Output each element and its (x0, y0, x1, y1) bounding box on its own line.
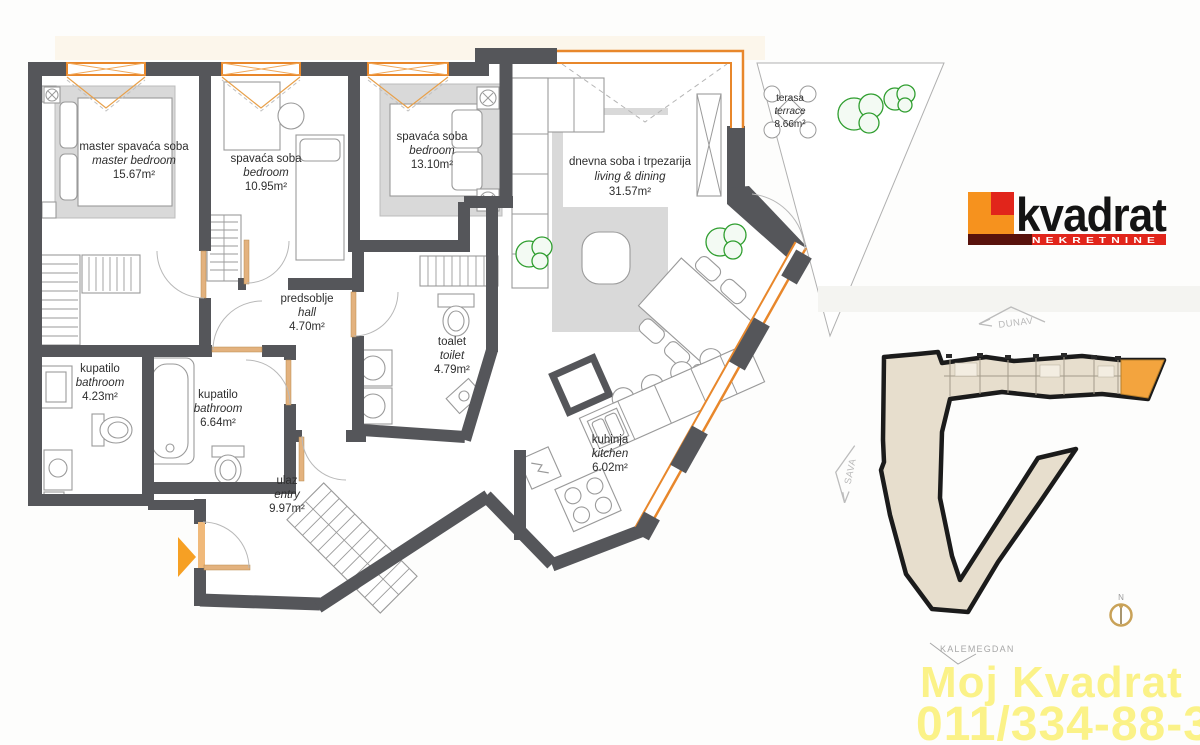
door-leaf (299, 437, 304, 481)
room-area: 10.95m² (245, 181, 287, 193)
socket-icon (477, 87, 499, 109)
room-name-en: toilet (440, 350, 465, 362)
room-area: 31.57m² (609, 186, 651, 198)
door-leaf (201, 251, 206, 298)
room-name-en: bedroom (409, 145, 455, 157)
room-name-en: bedroom (243, 167, 289, 179)
logo-kvadrat: kvadrat NEKRETNINE (968, 188, 1167, 245)
entry-door-sill (198, 522, 205, 568)
apartment-plan: master spavaća soba master bedroom 15.67… (28, 36, 944, 613)
room-name: kuhinja (592, 434, 629, 446)
room-area: 9.97m² (269, 503, 305, 515)
room-name-en: entry (274, 489, 301, 501)
living-armchair (582, 232, 630, 284)
room-area: 4.79m² (434, 364, 470, 376)
room-label-kitchen: kuhinja kitchen 6.02m² (592, 434, 629, 474)
river-label: SAVA (843, 457, 859, 485)
room-name-en: kitchen (592, 448, 628, 460)
room-name: master spavaća soba (79, 141, 189, 153)
floor-plan-canvas: master spavaća soba master bedroom 15.67… (0, 0, 1200, 745)
door-leaf (212, 347, 262, 352)
tv-unit (697, 94, 721, 196)
site-plan: DUNAV SAVA KALEMEGDAN N (818, 286, 1200, 664)
room-area: 6.02m² (592, 462, 628, 474)
room-area: 13.10m² (411, 159, 453, 171)
room-name-en: living & dining (595, 171, 667, 183)
room-label-bathroom-2: kupatilo bathroom 6.64m² (194, 389, 243, 429)
room-area: 6.64m² (200, 417, 236, 429)
landmark-label: KALEMEGDAN (940, 644, 1015, 654)
logo-bar-shade (968, 234, 1032, 245)
bedroom2-bed (296, 135, 344, 260)
bedroom2-wardrobe (207, 215, 241, 281)
room-name: spavaća soba (231, 153, 303, 165)
room-area: 8.66m² (774, 119, 806, 130)
room-label-bathroom-1: kupatilo bathroom 4.23m² (76, 363, 125, 403)
room-name: spavaća soba (397, 131, 469, 143)
compass-icon: N (1111, 593, 1132, 626)
room-name-en: bathroom (76, 377, 125, 389)
door-leaf (204, 565, 250, 570)
watermark-phone: 011/334-88-36 (916, 698, 1200, 745)
door-leaf (244, 240, 249, 284)
river-marker-sava: SAVA (830, 443, 862, 504)
room-area: 15.67m² (113, 169, 155, 181)
entry-arrow-icon (178, 537, 196, 577)
room-area: 4.23m² (82, 391, 118, 403)
watermark: Moj Kvadrat 011/334-88-36 (916, 658, 1200, 745)
floor-plan-page: master spavaća soba master bedroom 15.67… (0, 0, 1200, 745)
room-name: predsoblje (280, 293, 333, 305)
room-name-en: bathroom (194, 403, 243, 415)
door-leaf (351, 292, 356, 337)
room-name: kupatilo (198, 389, 238, 401)
room-name: toalet (438, 336, 467, 348)
door-leaf (286, 360, 291, 405)
room-area: 4.70m² (289, 321, 325, 333)
room-name: dnevna soba i trpezarija (569, 156, 692, 168)
logo-text: kvadrat (1016, 188, 1167, 241)
logo-red-square (991, 192, 1014, 215)
room-name-en: hall (298, 307, 316, 319)
room-label-terrace: terasa terrace 8.66m² (774, 93, 806, 130)
room-name: terasa (776, 93, 804, 104)
socket-icon (44, 87, 60, 103)
room-name-en: master bedroom (92, 155, 176, 167)
logo-subtext: NEKRETNINE (1032, 236, 1160, 245)
compass-north-label: N (1118, 593, 1124, 602)
river-label: DUNAV (998, 316, 1034, 331)
room-name-en: terrace (774, 106, 806, 117)
room-name: ulaz (276, 475, 297, 487)
room-name: kupatilo (80, 363, 120, 375)
